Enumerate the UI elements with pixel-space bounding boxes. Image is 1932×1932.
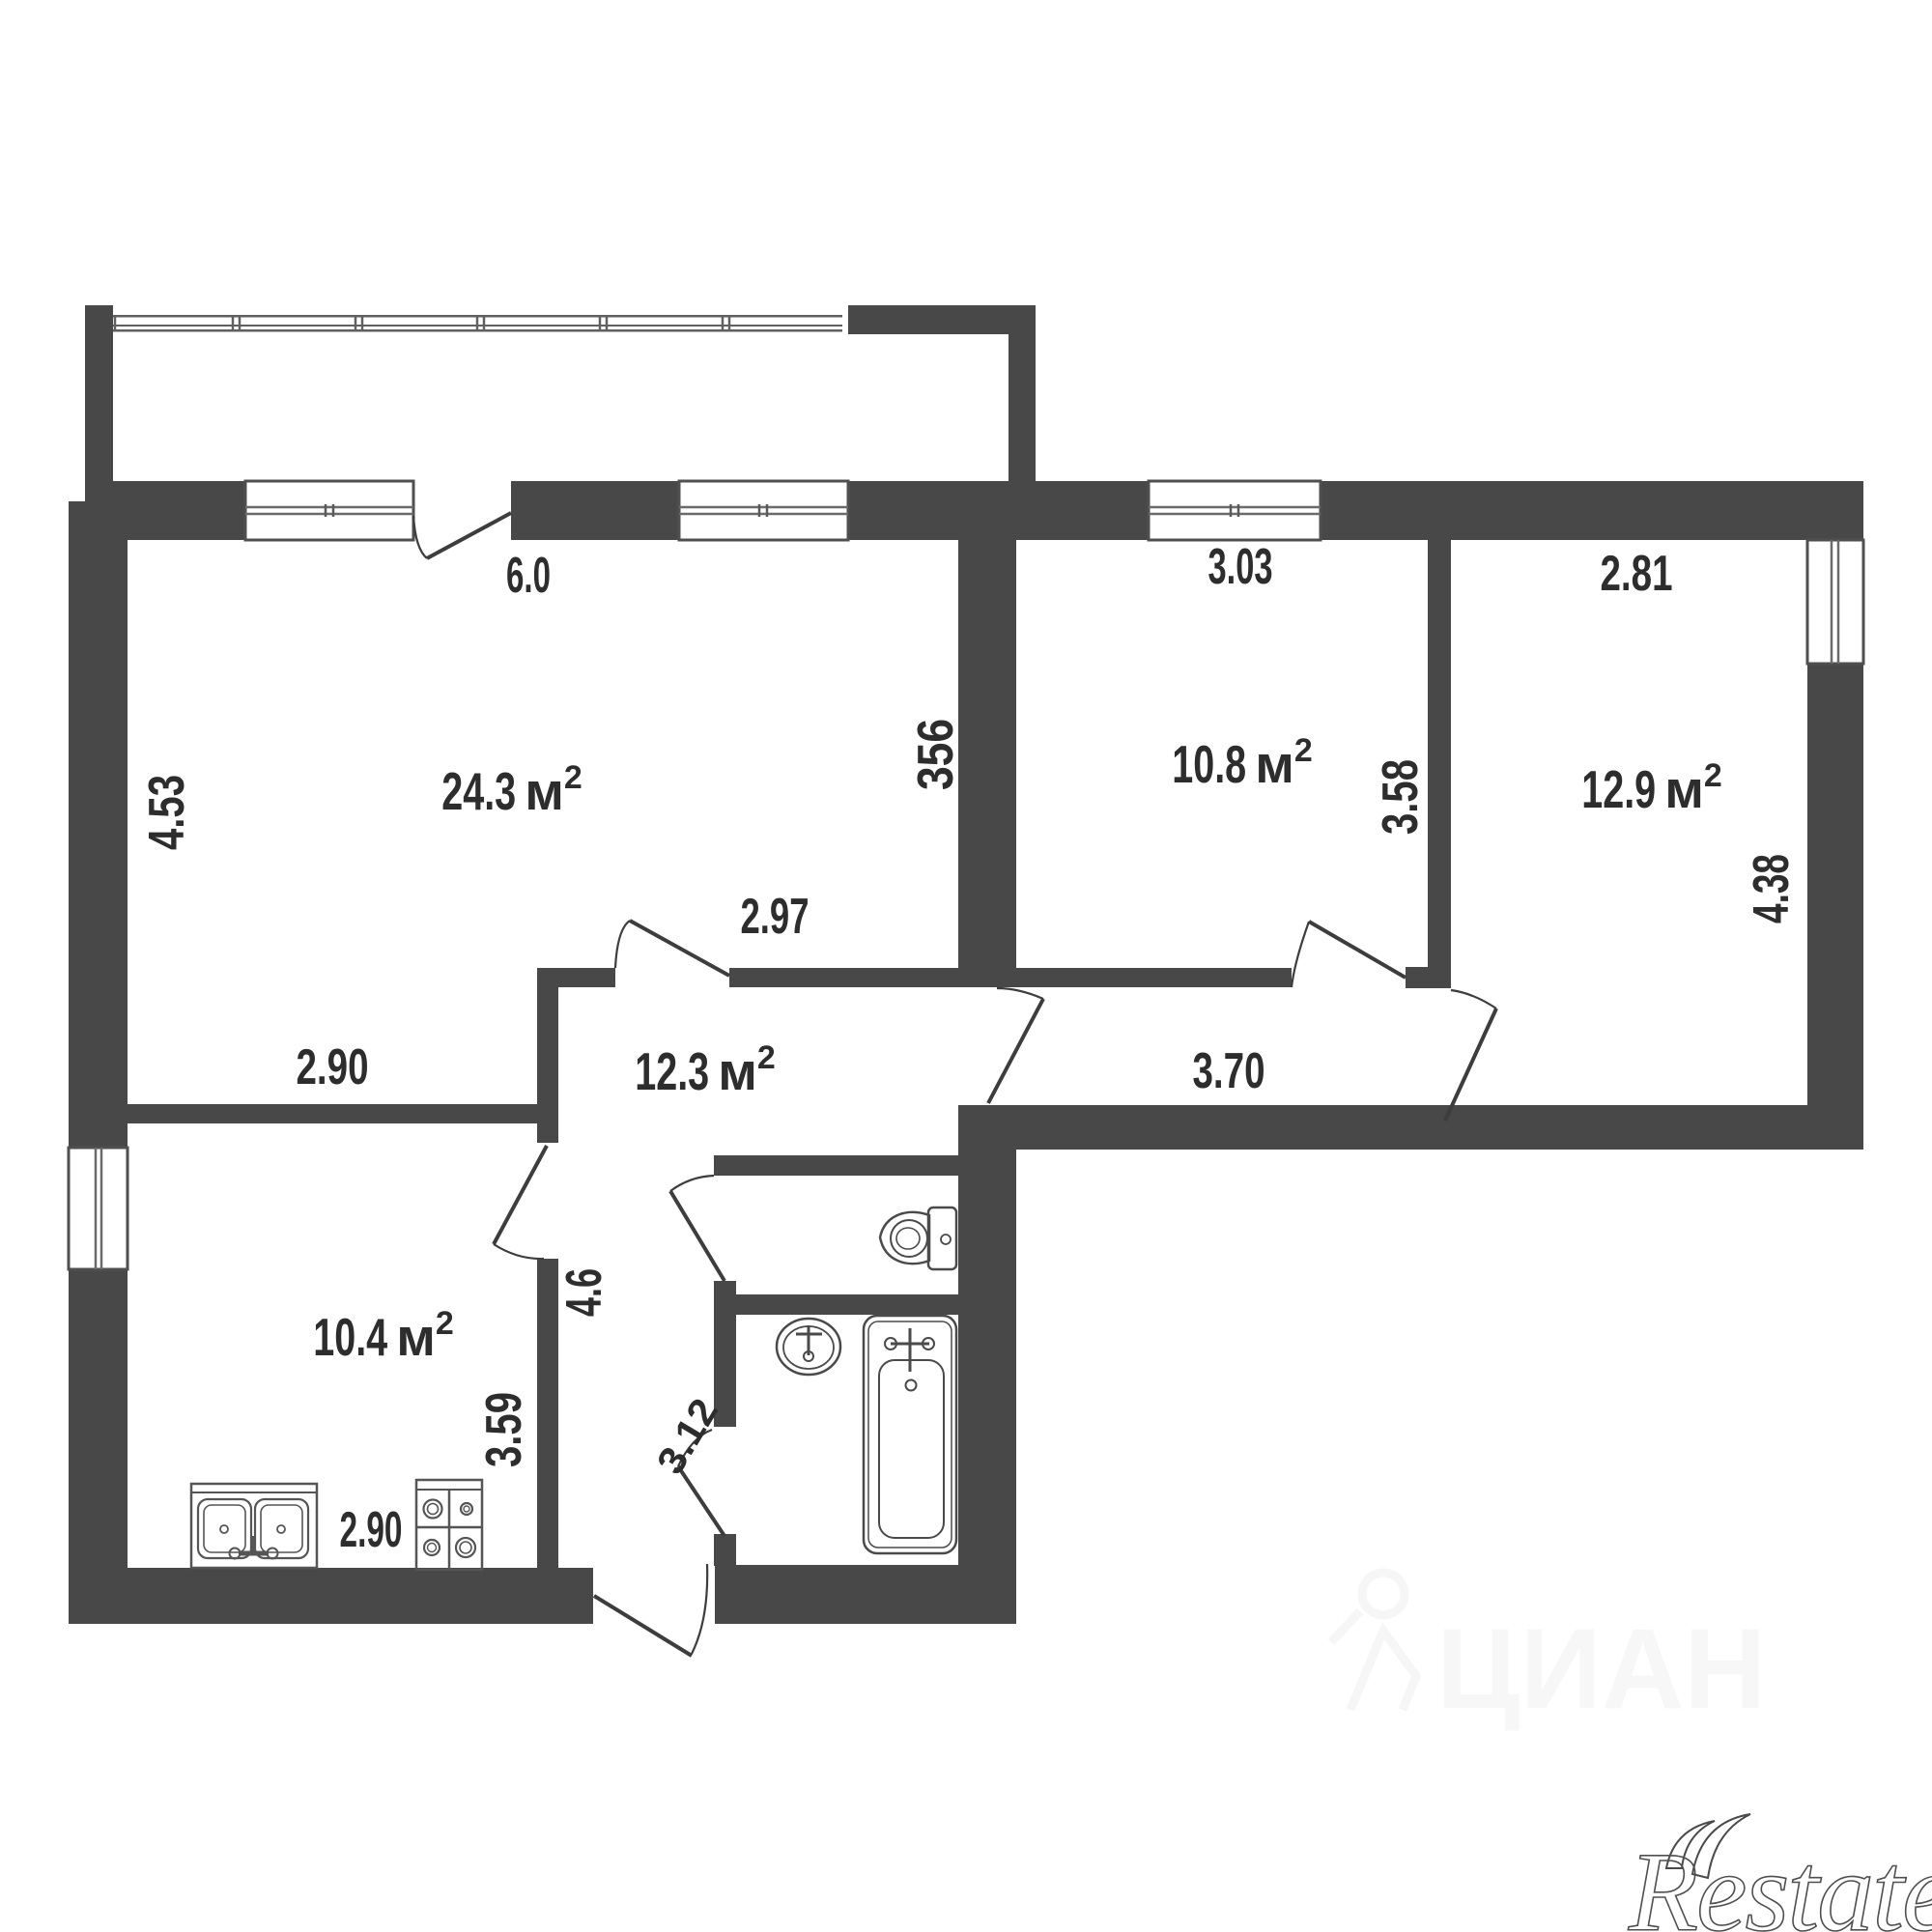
svg-text:3.03: 3.03: [1208, 539, 1273, 595]
svg-text:24.3м2: 24.3м2: [441, 759, 582, 821]
svg-text:4.53: 4.53: [139, 775, 195, 850]
svg-text:356: 356: [908, 719, 964, 790]
svg-text:4.38: 4.38: [1744, 854, 1800, 923]
svg-text:6.0: 6.0: [506, 548, 551, 604]
svg-text:12.3м2: 12.3м2: [635, 1039, 776, 1101]
svg-text:Restate: Restate: [1628, 1829, 1932, 1932]
svg-text:10.4м2: 10.4м2: [313, 1305, 454, 1367]
svg-text:12.9м2: 12.9м2: [1581, 757, 1722, 819]
svg-text:4.6: 4.6: [556, 1268, 612, 1317]
svg-text:3.59: 3.59: [476, 1392, 532, 1467]
svg-text:ЦИАН: ЦИАН: [1436, 1605, 1766, 1733]
svg-text:2.90: 2.90: [297, 1039, 369, 1095]
svg-text:2.81: 2.81: [1601, 546, 1673, 602]
svg-text:3.58: 3.58: [1373, 759, 1429, 835]
svg-text:2.97: 2.97: [741, 889, 810, 945]
svg-text:2.90: 2.90: [340, 1502, 403, 1558]
svg-text:3.70: 3.70: [1193, 1043, 1265, 1099]
svg-text:10.8м2: 10.8м2: [1172, 732, 1313, 794]
